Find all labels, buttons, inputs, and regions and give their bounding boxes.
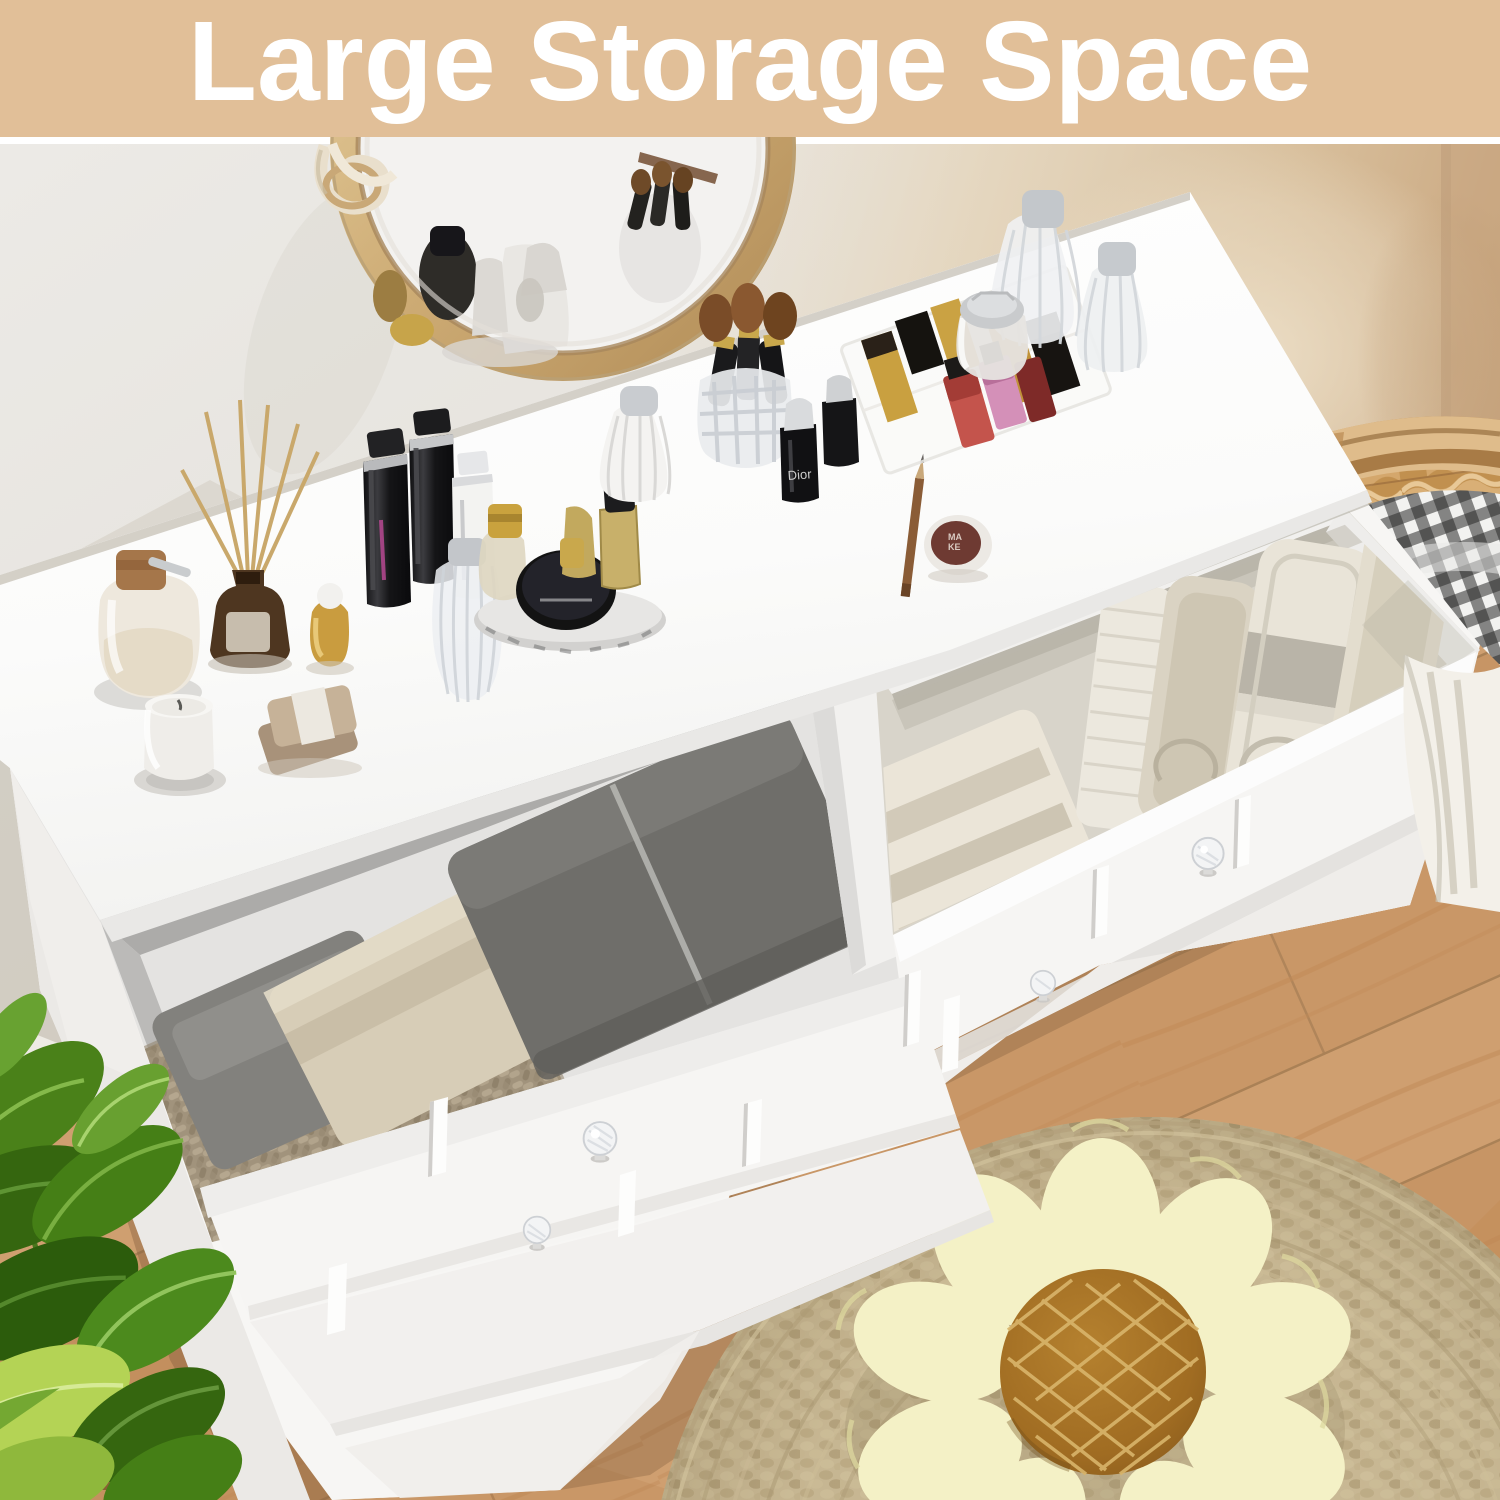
- svg-text:KE: KE: [948, 542, 961, 552]
- svg-text:Dior: Dior: [787, 466, 812, 483]
- svg-text:MA: MA: [948, 532, 962, 542]
- svg-text:Large Storage Space: Large Storage Space: [188, 0, 1312, 124]
